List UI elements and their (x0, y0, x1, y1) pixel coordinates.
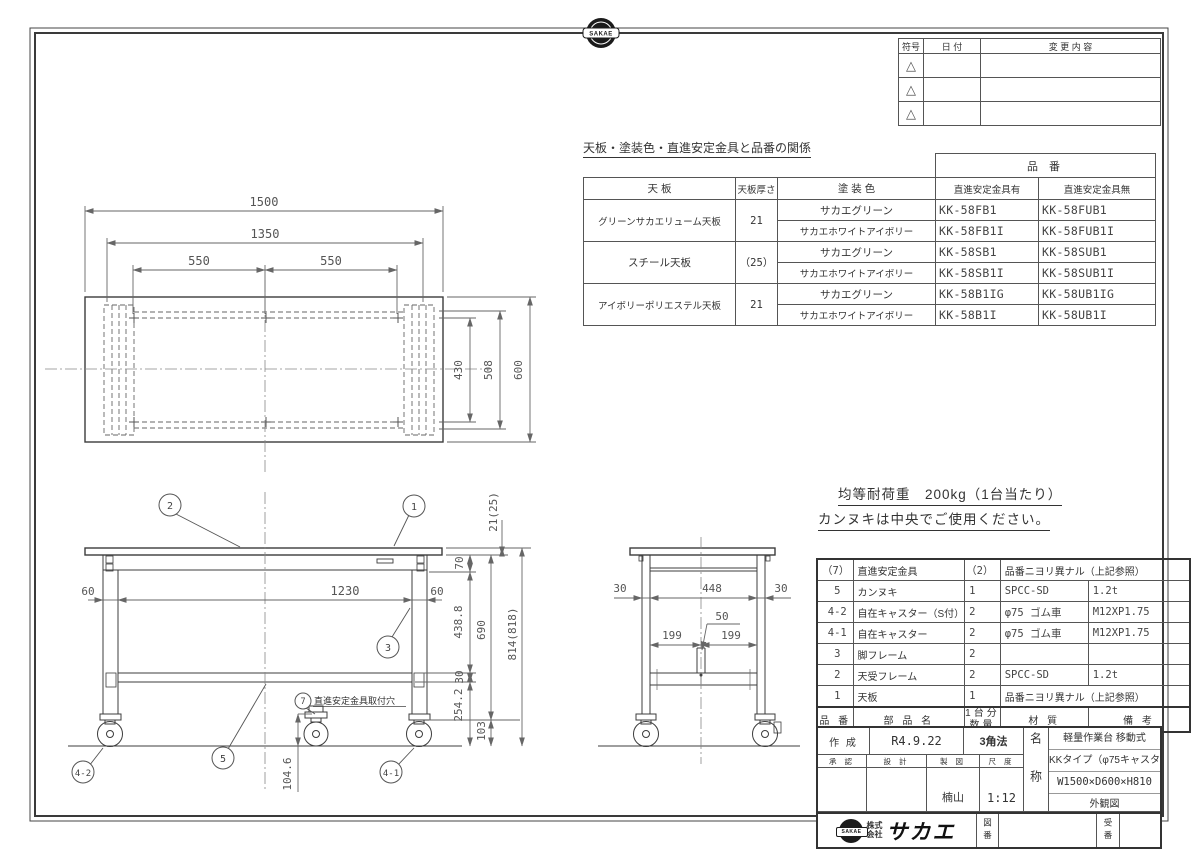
drawing-no-label: 図番 (982, 818, 994, 843)
parts-table-spacer (584, 154, 936, 178)
dim-30: 30 (453, 670, 466, 683)
casters-front (98, 706, 432, 747)
top-board-name: グリーンサカエリューム天板 (584, 200, 736, 242)
product-name-cell: 軽量作業台 移動式 KKタイプ（φ75キャスター） W1500×D600×H81… (1049, 728, 1160, 812)
side-view-object (598, 548, 800, 747)
title-block-bottom-row: SAKAE 株式 会社 サカエ 図番 受番 (818, 812, 1160, 847)
company-prefix: 株式 会社 (867, 822, 883, 840)
top-board-name: スチール天板 (584, 242, 736, 284)
tabletop-plan (85, 297, 443, 442)
bom-qty: 1 (965, 581, 1001, 602)
revision-symbol-icon: △ (899, 54, 924, 78)
company-prefix-2: 会社 (867, 831, 883, 840)
balloon-3: 3 (385, 643, 391, 654)
drawing-no-value (999, 814, 1097, 847)
balloon-5: 5 (220, 754, 226, 765)
paint-color: サカエホワイトアイボリー (778, 263, 936, 284)
front-view: 21(25) 70 438.8 690 814(818) 30 254.2 10… (68, 492, 531, 792)
design-label: 設 計 (867, 755, 927, 768)
bom-material: φ75 ゴム車 (1000, 623, 1088, 644)
revision-table: 符号 日 付 変 更 内 容 △ △ △ (898, 38, 1161, 126)
paint-color: サカエグリーン (778, 242, 936, 263)
drawing-no-label-cell: 図番 (977, 814, 999, 847)
drawing-sheet: SAKAE (0, 0, 1200, 849)
dim-254-2: 254.2 (452, 688, 465, 721)
balloon-7-note: 直進安定金具取付穴 (314, 695, 395, 706)
balloon-4-2: 4-2 (75, 769, 91, 779)
bom-name: 天受フレーム (853, 665, 965, 686)
bom-qty: 2 (965, 644, 1001, 665)
thickness-value: 21 (736, 200, 778, 242)
sakae-logo-band: SAKAE (836, 827, 868, 837)
scale-value: 1:12 (980, 768, 1024, 812)
revision-col-change: 変 更 内 容 (981, 39, 1161, 54)
dim-70: 70 (453, 556, 466, 569)
load-capacity-note: 均等耐荷重 200kg（1台当たり） (838, 483, 1062, 506)
bom-name: 脚フレーム (853, 644, 965, 665)
order-no-label: 受番 (1102, 818, 1114, 843)
approve-label: 承 認 (818, 755, 867, 768)
dim-690: 690 (475, 620, 488, 640)
right-leg (412, 570, 427, 714)
paint-color: サカエグリーン (778, 284, 936, 305)
order-no-value (1120, 814, 1160, 847)
kannuki-slot (377, 559, 393, 563)
col-top-board: 天 板 (584, 178, 736, 200)
bom-material: SPCC-SD (1000, 665, 1088, 686)
top-view: 1500 1350 550 550 430 508 600 (45, 195, 536, 472)
dim-1230: 1230 (331, 584, 360, 598)
bom-note: 品番ニヨリ異ナル（上記参照） (1000, 559, 1190, 581)
bom-col-qty-line1: 1台分 (965, 708, 1000, 720)
bom-no: （7） (817, 559, 853, 581)
bom-note: 品番ニヨリ異ナル（上記参照） (1000, 686, 1190, 708)
bom-qty: 2 (965, 623, 1001, 644)
product-line-4: 外観図 (1049, 794, 1160, 812)
dim-199-left: 199 (662, 629, 682, 642)
bom-table: （7） 直進安定金具 （2） 品番ニヨリ異ナル（上記参照） 5 カンヌキ 1 S… (816, 558, 1191, 733)
dim-550-right: 550 (320, 254, 342, 268)
bom-qty: （2） (965, 559, 1001, 581)
created-label: 作 成 (818, 728, 870, 755)
dim-21-25: 21(25) (487, 492, 500, 532)
hidden-frame-lines (104, 305, 434, 435)
revision-symbol-icon: △ (899, 102, 924, 126)
casters-side (634, 714, 782, 747)
part-no-with: KK-58SB1 (936, 242, 1039, 263)
dim-550-left: 550 (188, 254, 210, 268)
product-line-2: KKタイプ（φ75キャスター） (1049, 750, 1160, 772)
part-no-without: KK-58SUB1I (1039, 263, 1156, 284)
dim-448: 448 (702, 582, 722, 595)
drafter-name: 楠山 (927, 768, 980, 812)
parts-number-table: 品 番 天 板 天板厚さ 塗 装 色 直進安定金具有 直進安定金具無 グリーンサ… (583, 153, 1156, 326)
col-thickness: 天板厚さ (736, 178, 778, 200)
tabletop-front (85, 548, 442, 555)
dim-50: 50 (715, 610, 728, 623)
bom-name: 自在キャスター（S付） (853, 602, 965, 623)
created-date: R4.9.22 (870, 728, 964, 755)
projection-method: 3角法 (964, 728, 1024, 755)
paint-color: サカエホワイトアイボリー (778, 305, 936, 326)
balloon-1: 1 (411, 502, 417, 513)
dim-30-right: 30 (774, 582, 787, 595)
dim-600: 600 (512, 360, 525, 380)
sakae-badge-icon: SAKAE (583, 18, 619, 48)
revision-change-cell (981, 102, 1161, 126)
dim-60-left: 60 (81, 585, 94, 598)
col-paint-color: 塗 装 色 (778, 178, 936, 200)
balloons: 2 1 3 5 7 4-2 4-1 直進安定金具取付穴 (72, 494, 425, 783)
bom-remarks (1088, 644, 1190, 665)
col-without-hardware: 直進安定金具無 (1039, 178, 1156, 200)
title-block: 作 成 R4.9.22 3角法 承 認 設 計 製 図 尺 度 楠山 1:12 … (816, 726, 1162, 849)
dim-430: 430 (452, 360, 465, 380)
product-line-1: 軽量作業台 移動式 (1049, 728, 1160, 750)
col-with-hardware: 直進安定金具有 (936, 178, 1039, 200)
sakae-logo-icon: SAKAE (839, 819, 863, 843)
bom-name: 直進安定金具 (853, 559, 965, 581)
left-leg (103, 570, 118, 714)
side-view: 30 448 30 199 199 50 (598, 537, 800, 764)
dim-508: 508 (482, 360, 495, 380)
paint-color: サカエホワイトアイボリー (778, 221, 936, 242)
scale-label: 尺 度 (980, 755, 1024, 768)
revision-change-cell (981, 54, 1161, 78)
part-no-with: KK-58SB1I (936, 263, 1039, 284)
part-no-without: KK-58SUB1 (1039, 242, 1156, 263)
design-cell (867, 768, 927, 812)
bom-no: 4-2 (817, 602, 853, 623)
top-board-name: アイボリーポリエステル天板 (584, 284, 736, 326)
company-name: サカエ (887, 816, 956, 846)
part-no-with: KK-58FB1I (936, 221, 1039, 242)
bom-no: 3 (817, 644, 853, 665)
part-no-header: 品 番 (936, 154, 1156, 178)
part-no-with: KK-58B1IG (936, 284, 1039, 305)
bom-remarks: M12XP1.75 (1088, 623, 1190, 644)
hole-marks (129, 313, 403, 427)
dim-438-8: 438.8 (452, 605, 465, 638)
part-no-with: KK-58B1I (936, 305, 1039, 326)
dim-103: 103 (475, 721, 488, 741)
part-no-without: KK-58UB1I (1039, 305, 1156, 326)
dim-1500: 1500 (250, 195, 279, 209)
bom-name: 自在キャスター (853, 623, 965, 644)
bom-qty: 1 (965, 686, 1001, 708)
bom-no: 5 (817, 581, 853, 602)
thickness-value: （25） (736, 242, 778, 284)
dim-60-right: 60 (430, 585, 443, 598)
badge-text: SAKAE (589, 32, 613, 38)
company-logo: SAKAE 株式 会社 サカエ (818, 814, 977, 847)
part-no-without: KK-58UB1IG (1039, 284, 1156, 305)
bom-material: SPCC-SD (1000, 581, 1088, 602)
name-column-label: 名称 (1024, 728, 1049, 812)
name-label-text: 名称 (1028, 732, 1045, 808)
bom-remarks: 1.2t (1088, 665, 1190, 686)
bom-no: 1 (817, 686, 853, 708)
tabletop-side (630, 548, 775, 555)
bom-no: 4-1 (817, 623, 853, 644)
balloon-7: 7 (300, 697, 305, 707)
paint-color: サカエグリーン (778, 200, 936, 221)
revision-date-cell (924, 102, 981, 126)
part-no-without: KK-58FUB1I (1039, 221, 1156, 242)
dim-30-left: 30 (613, 582, 626, 595)
dim-199-right: 199 (721, 629, 741, 642)
revision-date-cell (924, 78, 981, 102)
part-no-without: KK-58FUB1 (1039, 200, 1156, 221)
dim-104-6: 104.6 (281, 757, 294, 790)
approve-cell (818, 768, 867, 812)
dim-1350: 1350 (251, 227, 280, 241)
balloon-4-1: 4-1 (383, 769, 399, 779)
top-view-dimensions (85, 206, 536, 442)
side-view-dimensions (614, 598, 791, 650)
bom-remarks: M12XP1.75 (1088, 602, 1190, 623)
revision-symbol-icon: △ (899, 78, 924, 102)
revision-date-cell (924, 54, 981, 78)
order-no-label-cell: 受番 (1097, 814, 1120, 847)
revision-col-date: 日 付 (924, 39, 981, 54)
revision-change-cell (981, 78, 1161, 102)
product-line-3: W1500×D600×H810 (1049, 772, 1160, 794)
bom-no: 2 (817, 665, 853, 686)
bom-name: カンヌキ (853, 581, 965, 602)
bom-material (1000, 644, 1088, 665)
bom-qty: 2 (965, 602, 1001, 623)
bom-name: 天板 (853, 686, 965, 708)
part-no-with: KK-58FB1 (936, 200, 1039, 221)
bom-remarks: 1.2t (1088, 581, 1190, 602)
thickness-value: 21 (736, 284, 778, 326)
bom-material: φ75 ゴム車 (1000, 602, 1088, 623)
dim-814-818: 814(818) (506, 608, 519, 661)
draft-label: 製 図 (927, 755, 980, 768)
revision-col-symbol: 符号 (899, 39, 924, 54)
balloon-2: 2 (167, 501, 173, 512)
bom-qty: 2 (965, 665, 1001, 686)
kannuki-usage-note: カンヌキは中央でご使用ください。 (818, 508, 1050, 531)
